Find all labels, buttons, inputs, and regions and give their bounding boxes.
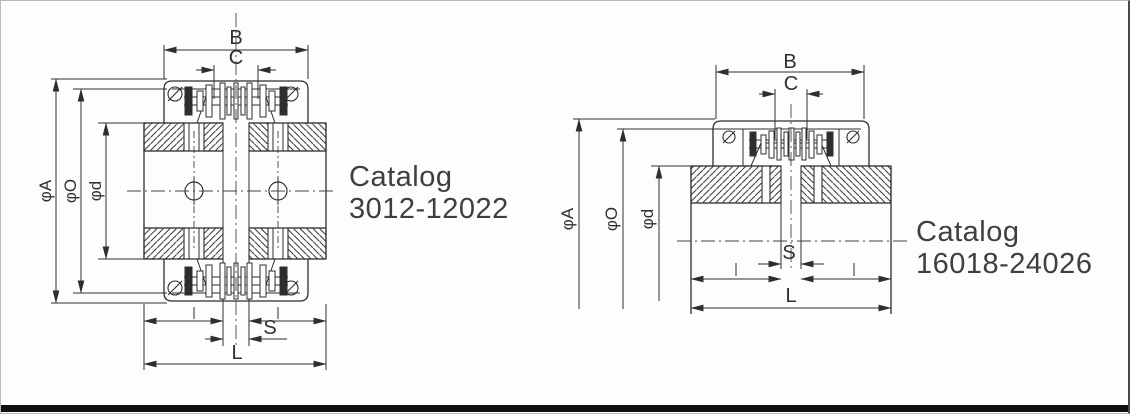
- catalog-word: Catalog: [349, 161, 509, 193]
- left-dim-label-phiA: φA: [36, 179, 55, 202]
- left-dim-label-S: S: [263, 317, 276, 339]
- left-figure: B C φA φO φd S L: [36, 13, 335, 370]
- catalog-annotation-right: Catalog 16018-24026: [916, 216, 1092, 280]
- catalog-annotation-left: Catalog 3012-12022: [349, 161, 509, 225]
- right-dim-label-B: B: [783, 51, 796, 73]
- left-dim-label-phiD: φd: [86, 181, 105, 201]
- right-dim-label-S: S: [782, 242, 795, 264]
- left-dim-label-C: C: [229, 47, 243, 69]
- right-figure: B C φA φO φd S L: [558, 51, 909, 314]
- bottom-border-bar: [1, 405, 1128, 412]
- right-dim-label-phiA: φA: [558, 207, 577, 230]
- coupling-technical-drawing: B C φA φO φd S L: [1, 1, 1130, 414]
- drawing-canvas: B C φA φO φd S L: [0, 0, 1130, 414]
- right-dim-label-C: C: [784, 73, 798, 95]
- right-dim-label-phiO: φO: [602, 207, 621, 231]
- left-dim-label-L: L: [231, 342, 242, 364]
- right-dim-label-L: L: [785, 285, 796, 307]
- left-dim-label-phiO: φO: [61, 179, 80, 203]
- catalog-word: Catalog: [916, 216, 1092, 248]
- catalog-number: 3012-12022: [349, 193, 509, 225]
- right-dim-label-phiD: φd: [638, 209, 657, 229]
- catalog-number: 16018-24026: [916, 248, 1092, 280]
- left-dim-label-B: B: [229, 27, 242, 49]
